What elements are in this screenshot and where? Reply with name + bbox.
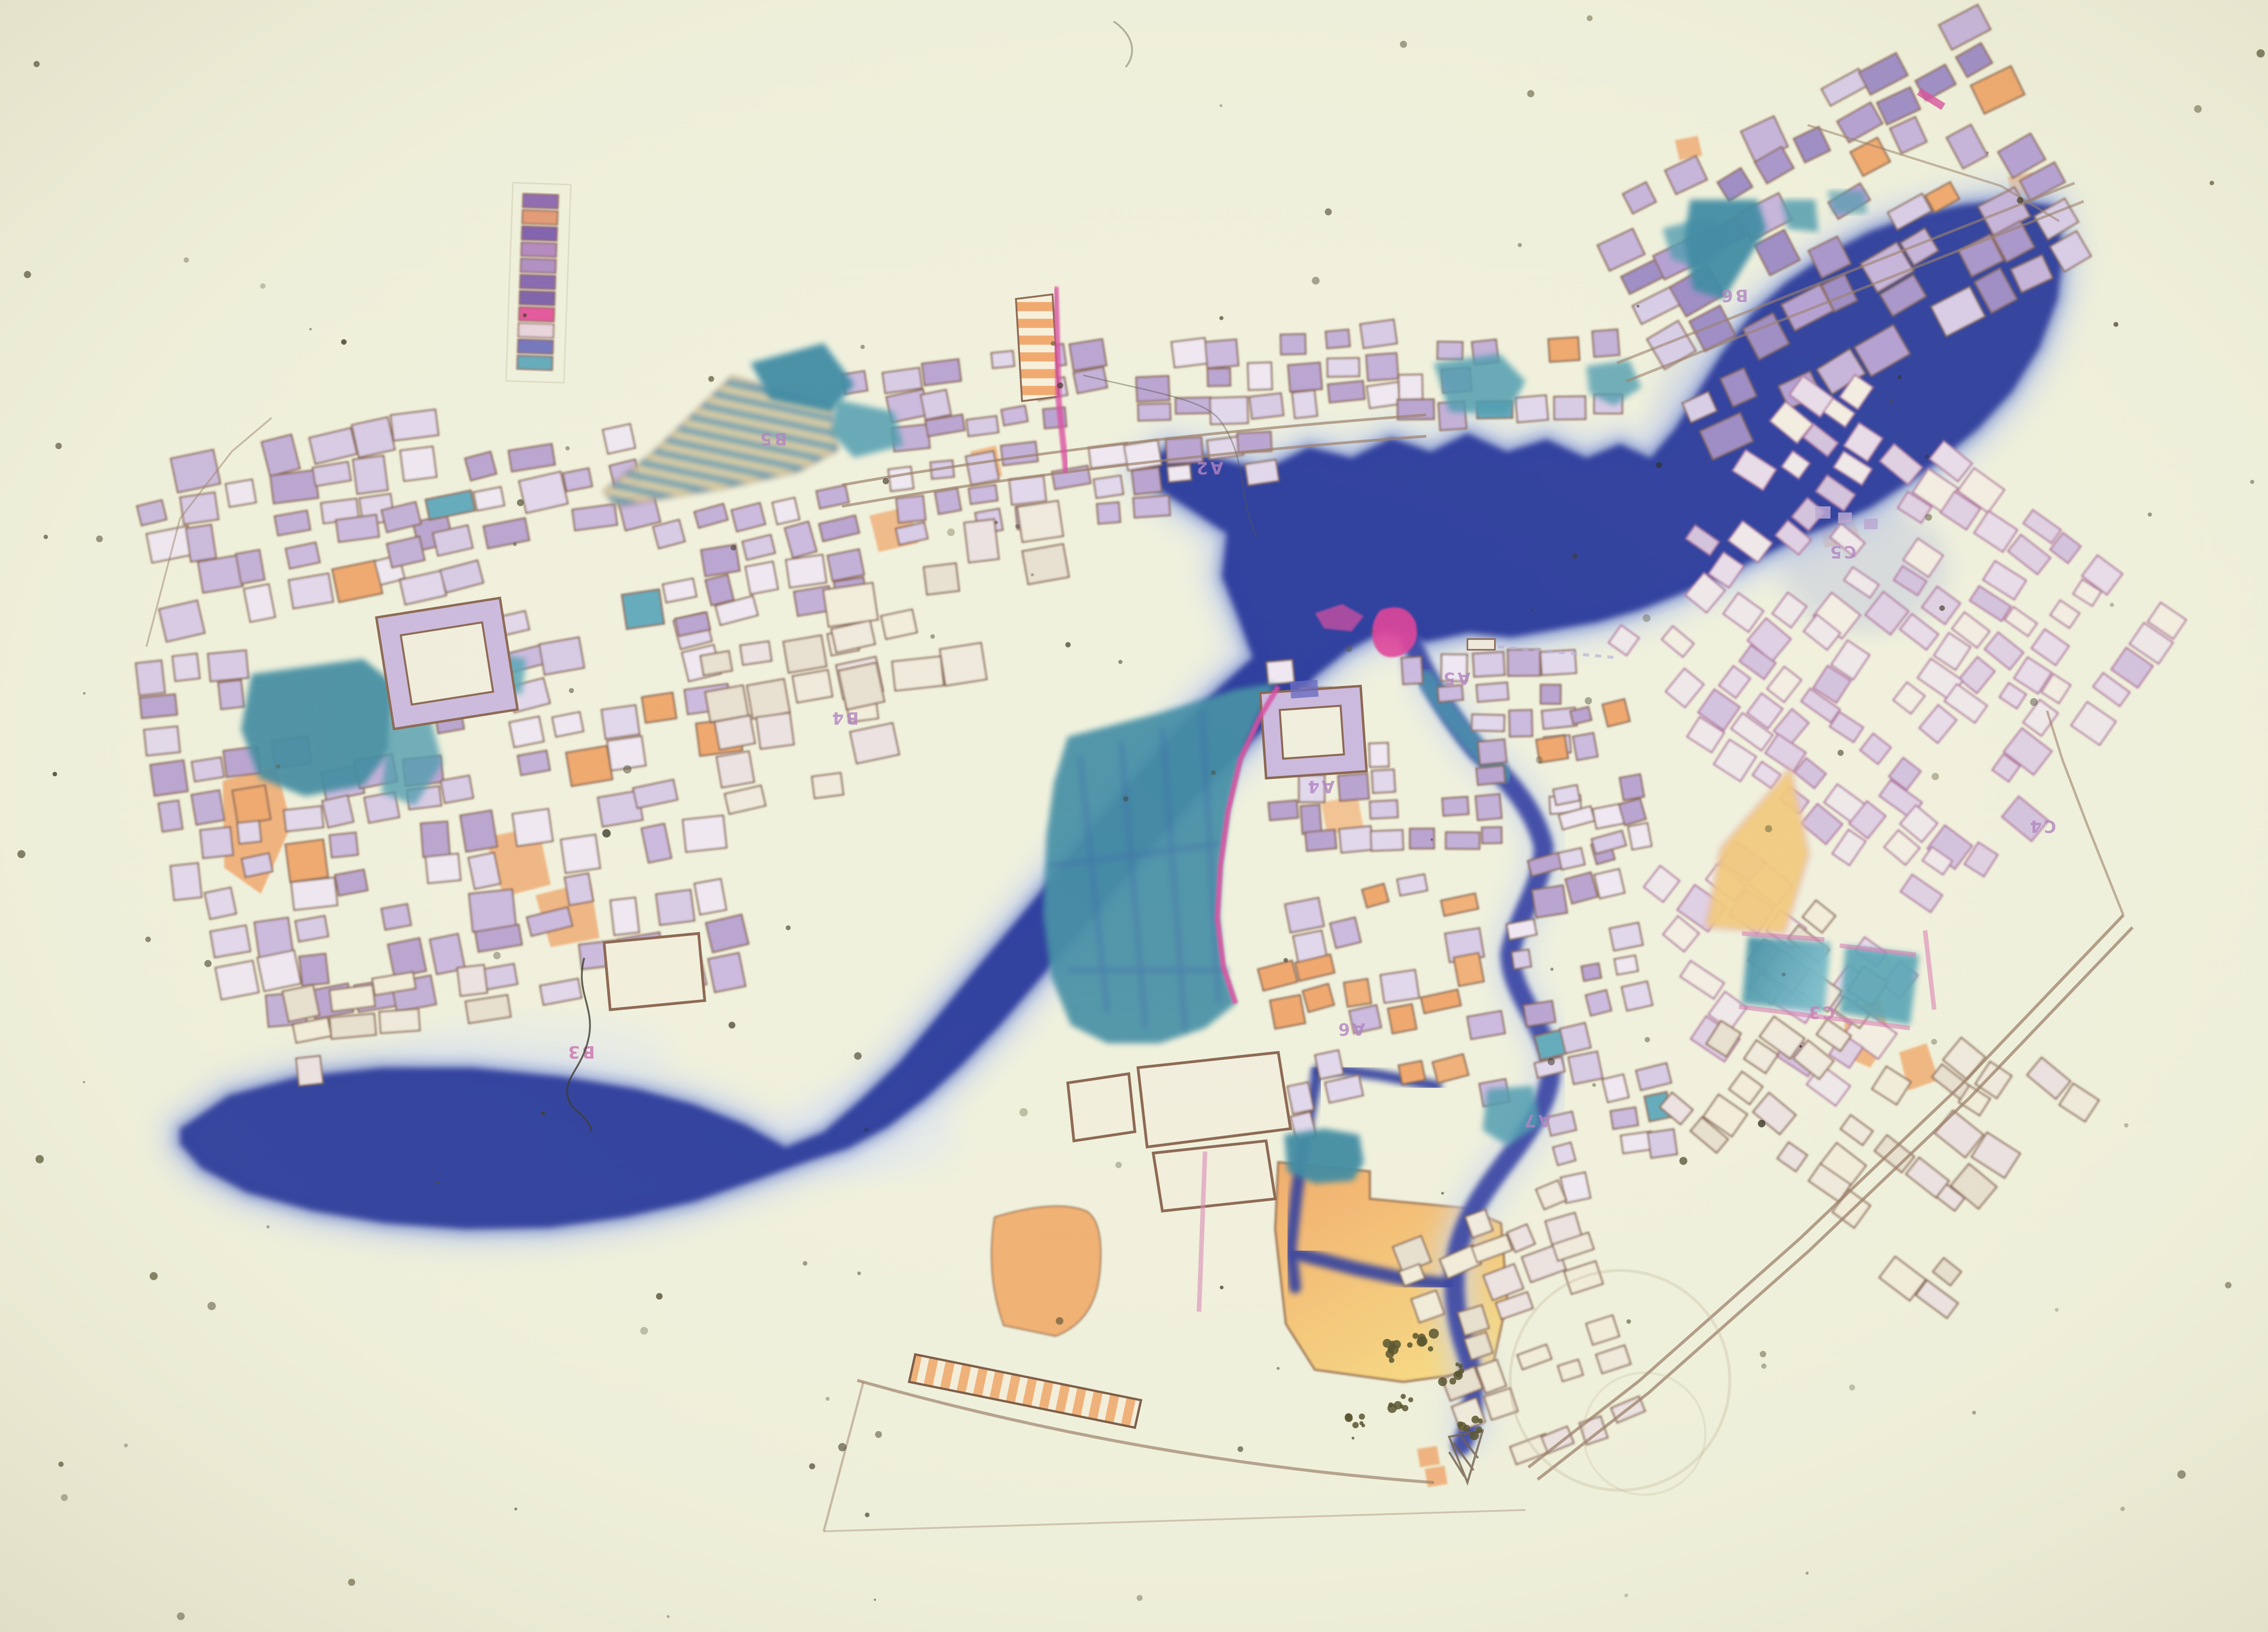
vignette-overlay <box>0 0 2268 1632</box>
scanned-slide-town-plan: A2A4A5A6A7B3B4B5B6C3C4C5 <box>0 0 2268 1632</box>
town-plan-map: A2A4A5A6A7B3B4B5B6C3C4C5 <box>0 0 2268 1632</box>
